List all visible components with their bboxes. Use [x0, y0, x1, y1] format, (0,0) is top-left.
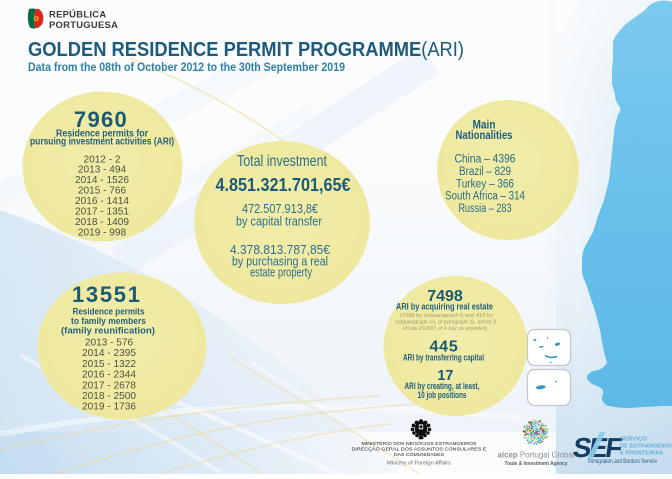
- svg-text:2019 - 998: 2019 - 998: [78, 227, 127, 238]
- svg-text:2017 - 2678: 2017 - 2678: [82, 380, 136, 391]
- svg-text:ARI by acquiring real estate: ARI by acquiring real estate: [396, 302, 493, 312]
- svg-text:4.851.321.701,65€: 4.851.321.701,65€: [216, 175, 351, 195]
- svg-text:2014 - 2395: 2014 - 2395: [82, 348, 136, 359]
- svg-text:(7088 by subparagraph i) and: (7088 by subparagraph i) and 410 by: [400, 313, 493, 319]
- svg-text:DAS COMUNIDADES: DAS COMUNIDADES: [394, 452, 445, 458]
- svg-text:2014 - 1526: 2014 - 1526: [75, 175, 129, 186]
- svg-text:aicep Portugal Global: aicep Portugal Global: [498, 451, 575, 460]
- svg-text:estate property: estate property: [250, 265, 312, 280]
- svg-text:ARI by transferring capital: ARI by transferring capital: [403, 353, 484, 363]
- svg-text:SERVIÇO: SERVIÇO: [620, 437, 647, 443]
- svg-text:(family reunification): (family reunification): [61, 326, 155, 337]
- svg-text:2016 - 1414: 2016 - 1414: [75, 196, 129, 207]
- svg-text:2019 - 1736: 2019 - 1736: [82, 402, 136, 413]
- svg-text:10 job positions: 10 job positions: [418, 390, 467, 400]
- svg-text:GOLDEN RESIDENCE PERMIT PROGRA: GOLDEN RESIDENCE PERMIT PROGRAMME(ARI): [28, 38, 464, 61]
- svg-text:E FRONTEIRAS: E FRONTEIRAS: [620, 451, 663, 457]
- svg-text:Trade & Investment Agency: Trade & Investment Agency: [505, 461, 568, 467]
- svg-text:DIRECÇÃO GERAL DOS ASSUNTOS CO: DIRECÇÃO GERAL DOS ASSUNTOS CONSULARES E: [352, 446, 488, 453]
- svg-text:2018 - 2500: 2018 - 2500: [82, 391, 136, 402]
- svg-text:DE ESTRANGEIROS: DE ESTRANGEIROS: [620, 444, 672, 450]
- svg-text:13551: 13551: [72, 282, 142, 307]
- svg-text:China – 4396: China – 4396: [455, 154, 516, 166]
- svg-text:South Africa – 314: South Africa – 314: [445, 191, 526, 203]
- svg-text:subparagraph iv), of paragraph: subparagraph iv), of paragraph d), artic…: [395, 320, 496, 326]
- svg-text:2018 - 1409: 2018 - 1409: [75, 217, 129, 228]
- svg-text:of Law 23/2007, of 4 July, as: of Law 23/2007, of 4 July, as amended): [403, 326, 487, 332]
- svg-text:Immigration and Borders Servic: Immigration and Borders Service: [588, 459, 658, 465]
- svg-text:2015 - 766: 2015 - 766: [78, 186, 127, 197]
- svg-text:2015 - 1322: 2015 - 1322: [82, 359, 136, 370]
- svg-text:2016 - 2344: 2016 - 2344: [82, 370, 136, 381]
- svg-text:pursuing investment activities: pursuing investment activities (ARI): [30, 137, 174, 148]
- svg-text:PORTUGUESA: PORTUGUESA: [49, 19, 118, 30]
- svg-text:Nationalities: Nationalities: [456, 130, 513, 142]
- svg-text:Brazil – 829: Brazil – 829: [459, 166, 511, 178]
- svg-text:Total investment: Total investment: [237, 153, 327, 170]
- svg-text:Ministry of Foreign Affairs: Ministry of Foreign Affairs: [387, 461, 451, 467]
- svg-text:2013 - 494: 2013 - 494: [78, 165, 127, 176]
- svg-text:Data from the 08th of October: Data from the 08th of October 2012 to th…: [28, 61, 346, 74]
- svg-text:MINISTÉRIO DOS NEGÓCIOS ESTRAN: MINISTÉRIO DOS NEGÓCIOS ESTRANGEIROS: [362, 440, 478, 447]
- svg-text:2017 - 1351: 2017 - 1351: [75, 207, 129, 218]
- svg-text:2012 - 2: 2012 - 2: [83, 154, 120, 165]
- svg-text:REPÚBLICA: REPÚBLICA: [49, 9, 106, 20]
- svg-text:Turkey – 366: Turkey – 366: [456, 178, 514, 190]
- svg-text:by capital transfer: by capital transfer: [236, 214, 323, 229]
- svg-text:2013 - 576: 2013 - 576: [85, 338, 134, 349]
- svg-text:Russia – 283: Russia – 283: [459, 203, 512, 215]
